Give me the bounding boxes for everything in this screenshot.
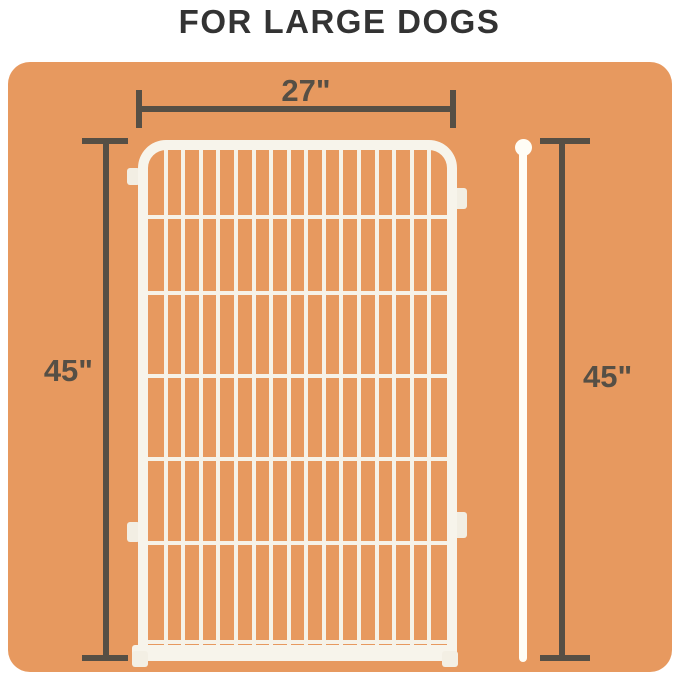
rod-ball-top (515, 139, 532, 156)
orange-background-card: 27" 45" 45" (8, 62, 672, 672)
fence-bottom-rail (132, 645, 457, 661)
left-height-dimension-bottom-cap (82, 655, 128, 661)
fence-right-foot (442, 651, 458, 667)
infographic: FOR LARGE DOGS 27" 45" 45" (0, 0, 679, 679)
left-height-dimension-top-cap (82, 138, 128, 144)
rod-shaft (519, 150, 527, 662)
width-dimension-label: 27" (256, 72, 356, 109)
left-height-dimension-line (103, 138, 109, 661)
right-height-dimension-top-cap (540, 138, 590, 144)
right-height-dimension-line (559, 138, 565, 661)
width-dimension-right-cap (450, 90, 456, 128)
fence-panel-frame (138, 140, 457, 660)
right-height-dimension-bottom-cap (540, 655, 590, 661)
width-dimension-line (136, 106, 456, 112)
page-title: FOR LARGE DOGS (0, 3, 679, 41)
left-height-dimension-label: 45" (25, 352, 93, 389)
fence-left-foot (132, 651, 148, 667)
right-height-dimension-label: 45" (583, 358, 632, 395)
width-dimension-left-cap (136, 90, 142, 128)
